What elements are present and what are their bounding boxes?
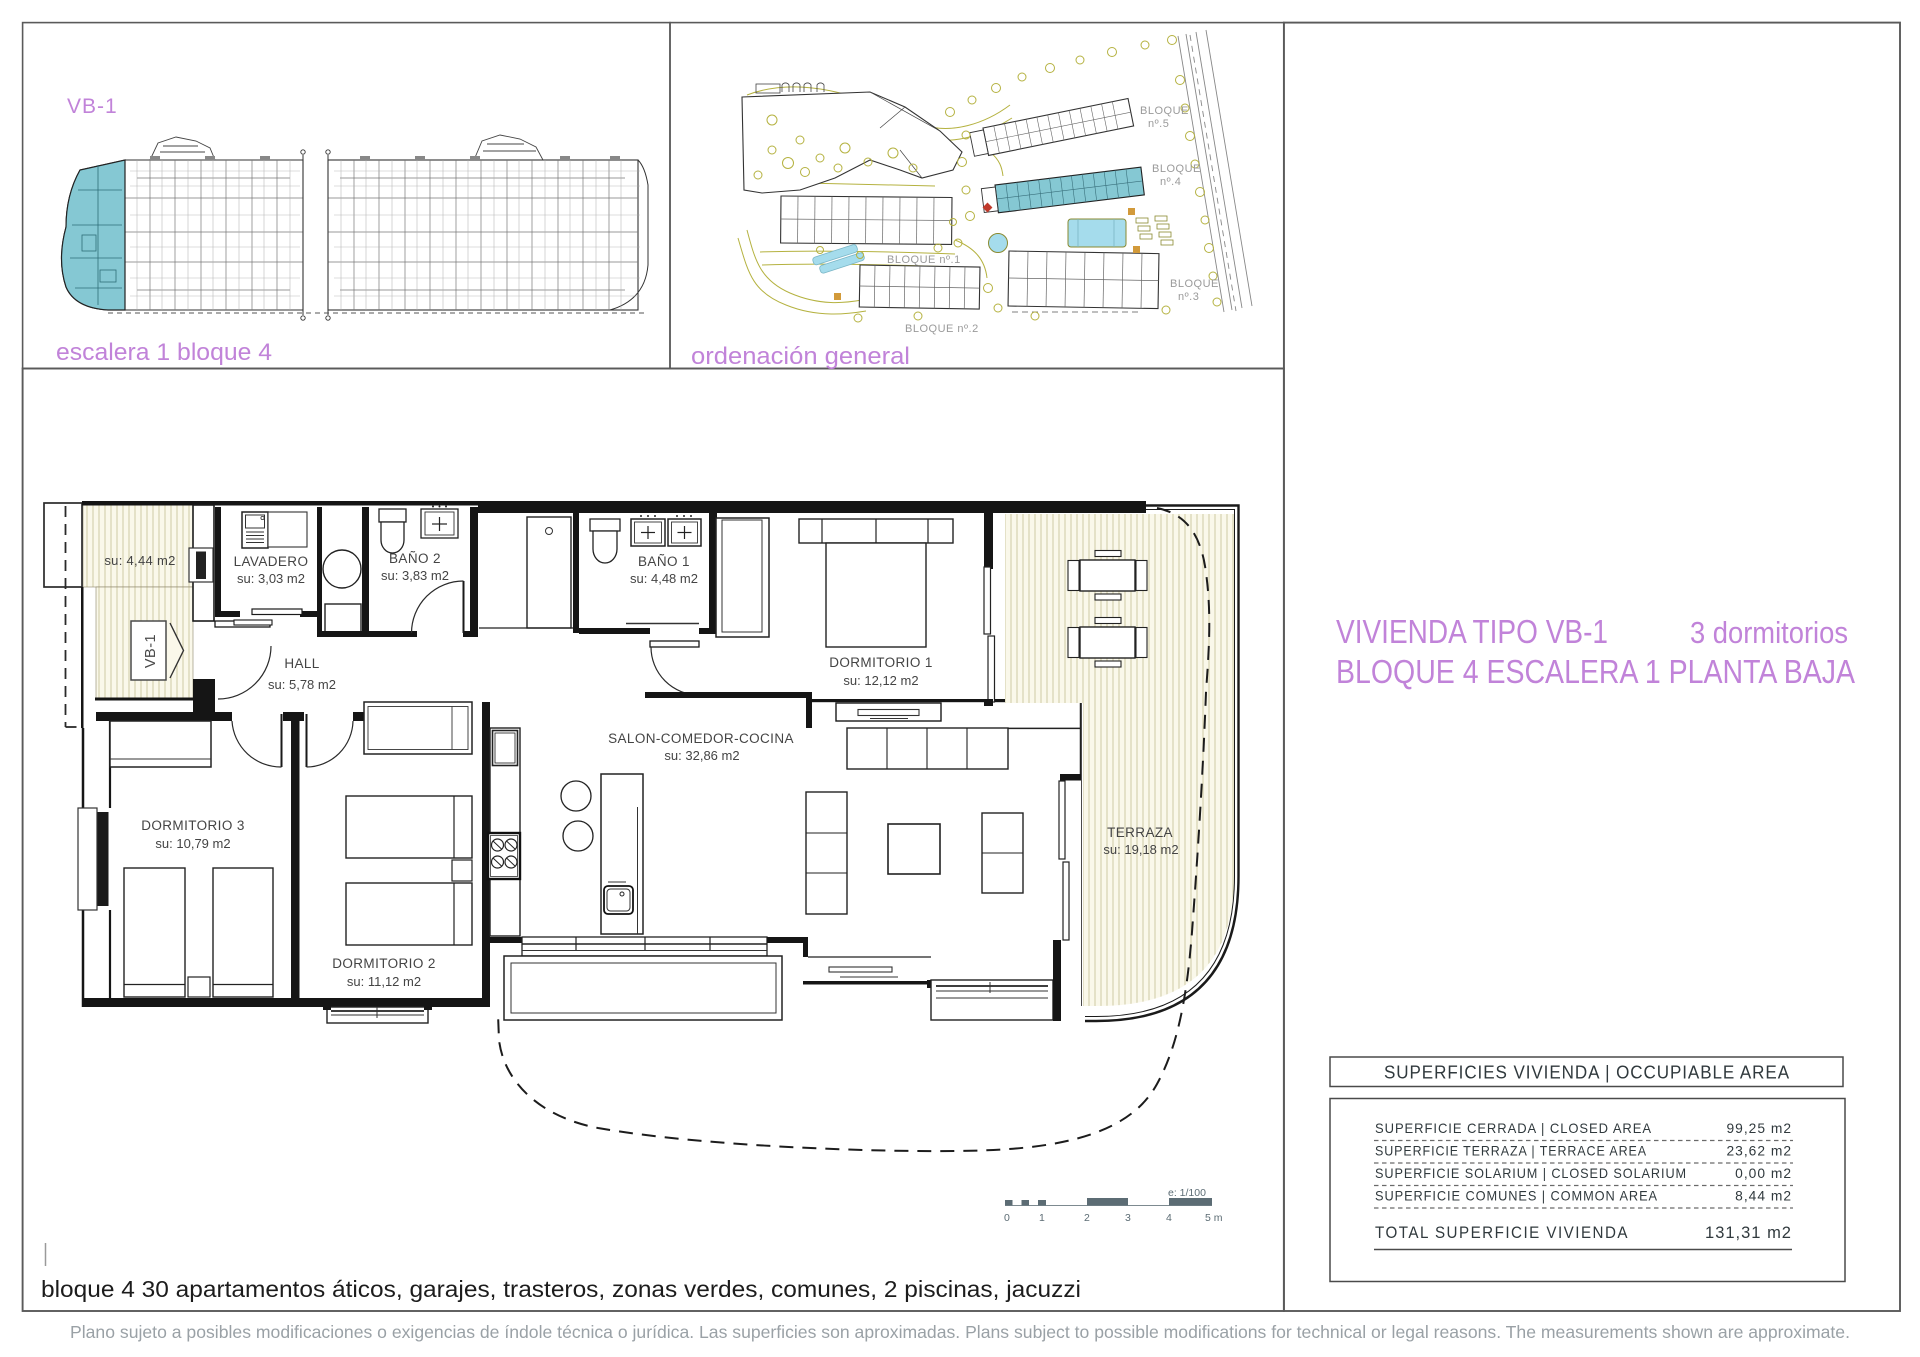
svg-text:BLOQUE nº.1: BLOQUE nº.1 [887, 254, 961, 266]
svg-text:DORMITORIO 3: DORMITORIO 3 [141, 818, 245, 833]
svg-text:ordenación general: ordenación general [691, 343, 910, 370]
svg-text:0,00 m2: 0,00 m2 [1735, 1166, 1792, 1181]
svg-text:su: 32,86 m2: su: 32,86 m2 [664, 748, 739, 763]
svg-text:131,31 m2: 131,31 m2 [1705, 1224, 1792, 1242]
svg-text:su: 4,44 m2: su: 4,44 m2 [104, 553, 175, 568]
svg-text:su: 4,48 m2: su: 4,48 m2 [630, 571, 698, 586]
svg-text:HALL: HALL [284, 656, 319, 671]
svg-text:nº.3: nº.3 [1178, 291, 1199, 303]
svg-text:SUPERFICIE CERRADA | CLOSED AR: SUPERFICIE CERRADA | CLOSED AREA [1375, 1121, 1652, 1136]
svg-text:su: 11,12 m2: su: 11,12 m2 [347, 974, 421, 989]
svg-text:bloque 4 30 apartamentos ático: bloque 4 30 apartamentos áticos, garajes… [41, 1276, 1081, 1302]
svg-text:escalera 1 bloque 4: escalera 1 bloque 4 [56, 339, 272, 366]
svg-text:DORMITORIO 2: DORMITORIO 2 [332, 956, 436, 971]
svg-text:99,25 m2: 99,25 m2 [1726, 1121, 1792, 1136]
svg-text:su: 10,79 m2: su: 10,79 m2 [155, 836, 230, 851]
svg-text:8,44 m2: 8,44 m2 [1735, 1189, 1792, 1204]
svg-text:SUPERFICIE SOLARIUM | CLOSED S: SUPERFICIE SOLARIUM | CLOSED SOLARIUM [1375, 1166, 1687, 1181]
svg-text:3 dormitorios: 3 dormitorios [1690, 615, 1848, 650]
svg-text:su: 19,18 m2: su: 19,18 m2 [1103, 842, 1178, 857]
svg-text:BAÑO 2: BAÑO 2 [389, 551, 441, 566]
svg-text:su: 5,78 m2: su: 5,78 m2 [268, 677, 336, 692]
svg-text:nº.4: nº.4 [1160, 176, 1181, 188]
svg-text:2: 2 [1084, 1212, 1090, 1224]
svg-text:su: 3,03 m2: su: 3,03 m2 [237, 571, 305, 586]
svg-text:su: 12,12 m2: su: 12,12 m2 [843, 673, 918, 688]
svg-text:BLOQUE: BLOQUE [1152, 163, 1201, 175]
svg-text:Plano sujeto a posibles modifi: Plano sujeto a posibles modificaciones o… [70, 1322, 1850, 1342]
svg-text:1: 1 [1039, 1212, 1045, 1224]
svg-text:BLOQUE nº.2: BLOQUE nº.2 [905, 323, 979, 335]
svg-text:3: 3 [1125, 1212, 1131, 1224]
svg-text:BLOQUE 4 ESCALERA 1 PLANTA B: BLOQUE 4 ESCALERA 1 PLANTA BAJA [1336, 653, 1855, 690]
svg-text:TERRAZA: TERRAZA [1107, 825, 1173, 840]
svg-text:23,62 m2: 23,62 m2 [1726, 1144, 1792, 1159]
svg-text:nº.5: nº.5 [1148, 118, 1169, 130]
svg-text:BLOQUE: BLOQUE [1170, 278, 1219, 290]
svg-text:DORMITORIO 1: DORMITORIO 1 [829, 655, 933, 670]
svg-text:SUPERFICIES VIVIENDA | OCCUPIA: SUPERFICIES VIVIENDA | OCCUPIABLE AREA [1384, 1062, 1790, 1083]
svg-text:LAVADERO: LAVADERO [234, 554, 309, 569]
svg-text:VB-1: VB-1 [67, 95, 118, 118]
svg-text:5 m: 5 m [1205, 1212, 1223, 1224]
svg-text:TOTAL SUPERFICIE VIVIENDA: TOTAL SUPERFICIE VIVIENDA [1375, 1224, 1629, 1242]
svg-text:SUPERFICIE COMUNES | COMMON AR: SUPERFICIE COMUNES | COMMON AREA [1375, 1189, 1658, 1204]
svg-text:VB-1: VB-1 [143, 634, 159, 668]
svg-text:4: 4 [1166, 1212, 1172, 1224]
svg-text:0: 0 [1004, 1212, 1010, 1224]
svg-text:su: 3,83 m2: su: 3,83 m2 [381, 568, 449, 583]
svg-text:SALON-COMEDOR-COCINA: SALON-COMEDOR-COCINA [608, 731, 794, 746]
svg-text:e: 1/100: e: 1/100 [1168, 1187, 1206, 1199]
svg-text:VIVIENDA TIPO VB-1: VIVIENDA TIPO VB-1 [1336, 613, 1608, 650]
svg-text:SUPERFICIE TERRAZA | TERRACE: SUPERFICIE TERRAZA | TERRACE AREA [1375, 1144, 1647, 1159]
svg-text:BLOQUE: BLOQUE [1140, 105, 1189, 117]
svg-text:BAÑO 1: BAÑO 1 [638, 554, 690, 569]
